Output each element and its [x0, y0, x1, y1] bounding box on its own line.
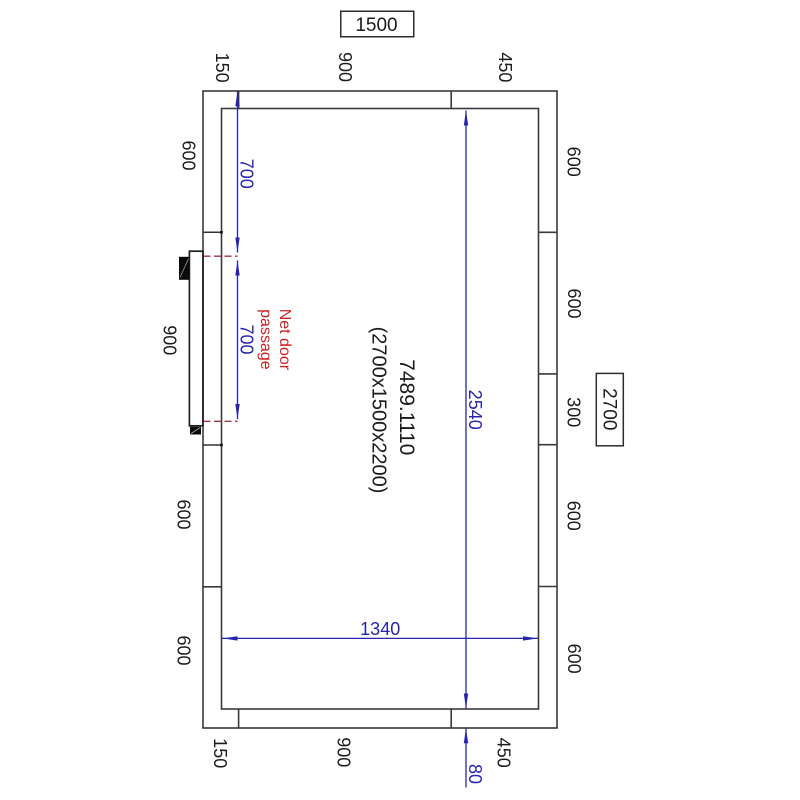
svg-text:1500: 1500 — [355, 15, 397, 36]
svg-text:1340: 1340 — [360, 619, 400, 639]
svg-text:2540: 2540 — [465, 390, 485, 430]
svg-text:150: 150 — [212, 53, 232, 83]
svg-text:600: 600 — [174, 499, 194, 529]
svg-text:150: 150 — [210, 738, 230, 768]
svg-text:600: 600 — [564, 644, 584, 674]
svg-text:600: 600 — [179, 140, 199, 170]
svg-text:600: 600 — [174, 635, 194, 665]
svg-text:80: 80 — [465, 764, 485, 784]
svg-text:450: 450 — [493, 738, 513, 768]
svg-text:passage: passage — [257, 309, 274, 370]
svg-text:900: 900 — [334, 737, 354, 767]
svg-text:600: 600 — [564, 288, 584, 318]
svg-text:600: 600 — [564, 501, 584, 531]
svg-text:300: 300 — [564, 397, 584, 427]
svg-text:Net door: Net door — [276, 309, 293, 371]
svg-text:600: 600 — [564, 147, 584, 177]
svg-text:900: 900 — [335, 52, 355, 82]
svg-text:450: 450 — [495, 52, 515, 82]
svg-text:2700: 2700 — [599, 388, 620, 430]
svg-text:700: 700 — [237, 324, 257, 354]
svg-text:(2700x1500x2200): (2700x1500x2200) — [368, 327, 390, 494]
svg-text:7489.1110: 7489.1110 — [395, 359, 418, 455]
svg-text:900: 900 — [160, 325, 180, 355]
svg-text:700: 700 — [237, 159, 257, 189]
